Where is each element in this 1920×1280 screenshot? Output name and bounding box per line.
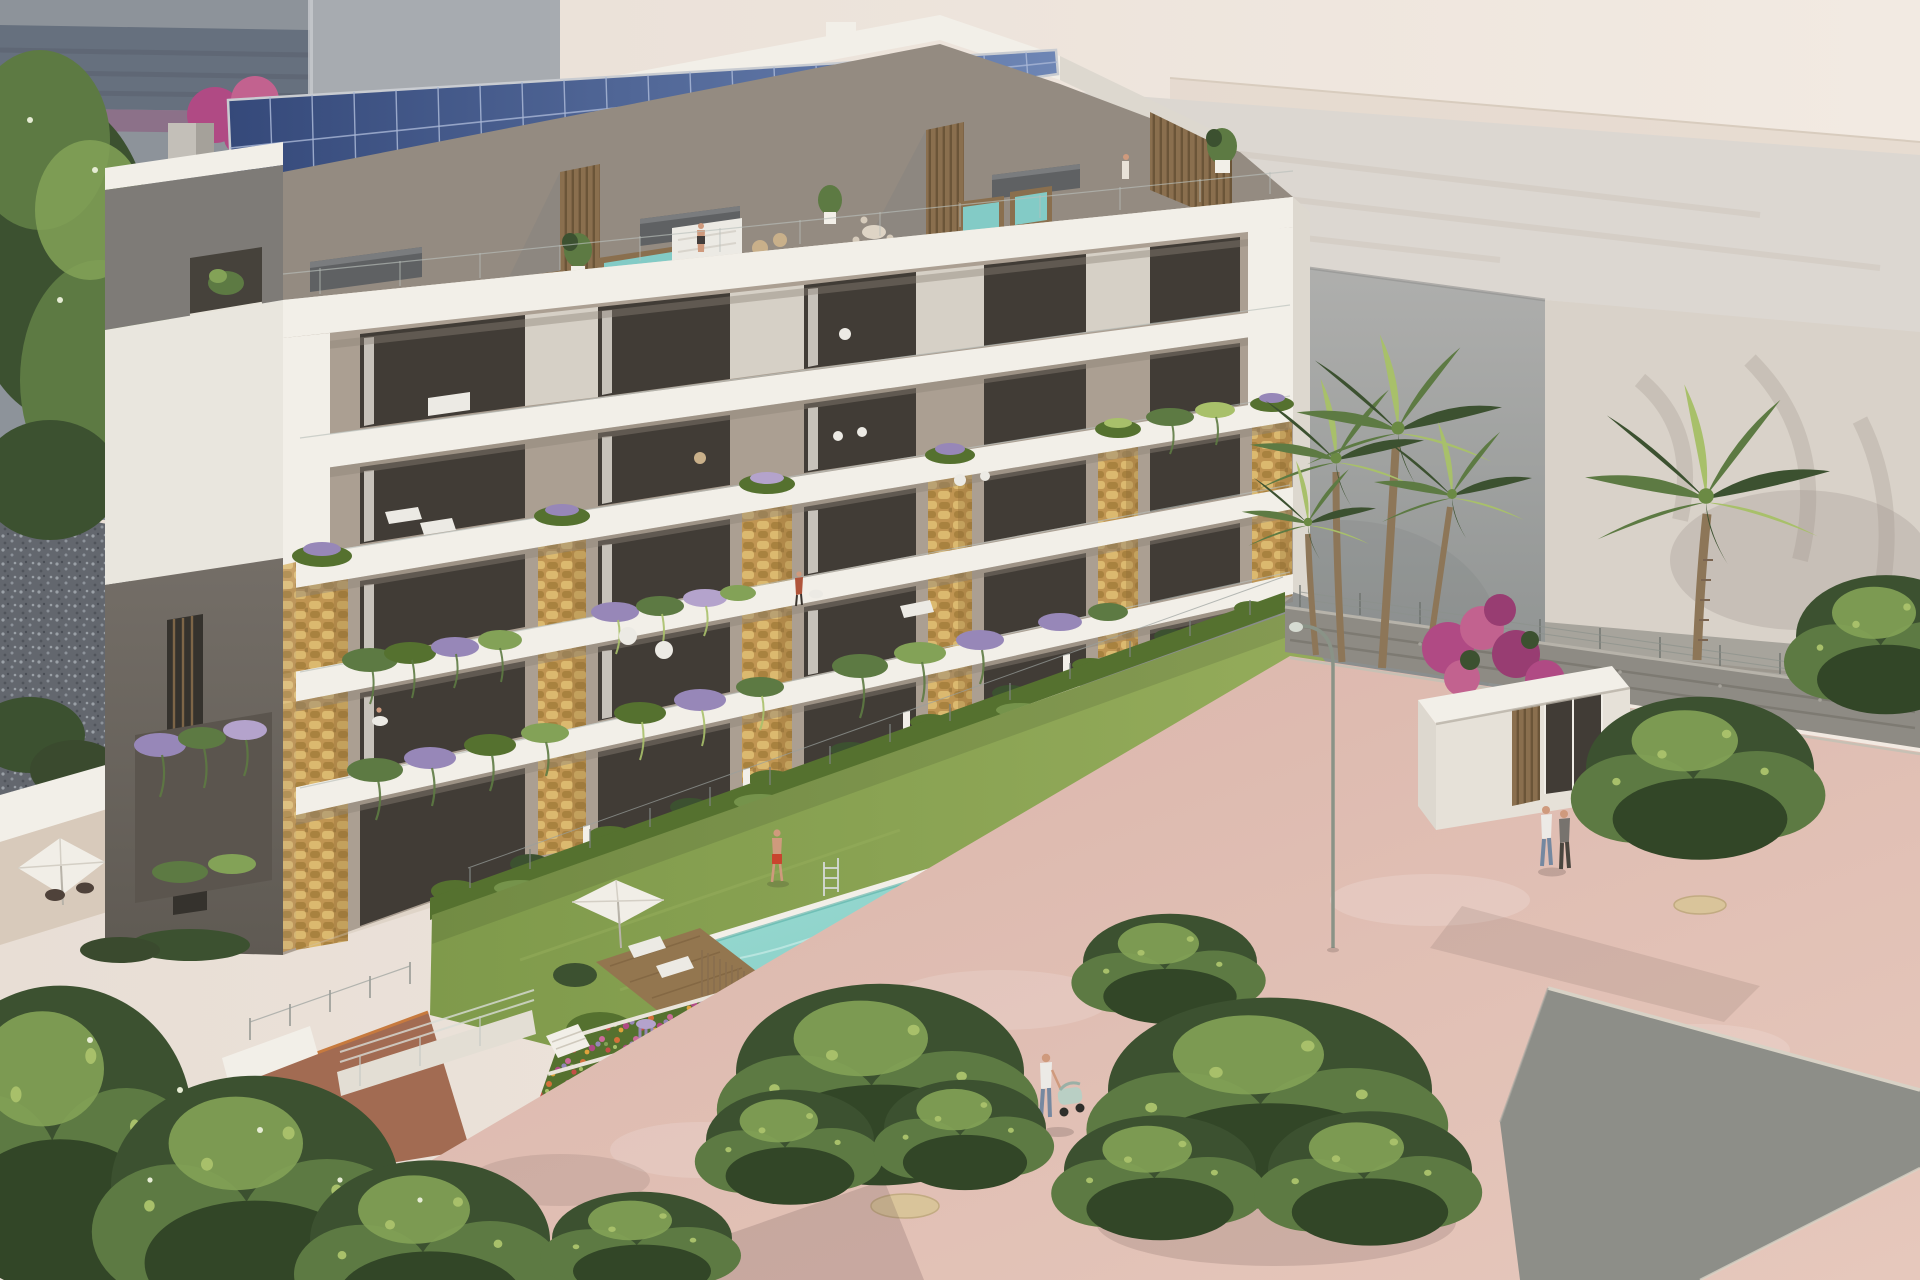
render-canvas — [0, 0, 1920, 1280]
tree-pit — [1674, 896, 1726, 914]
architectural-render-scene: Photorealistic render of a modern six-st… — [0, 0, 1920, 1280]
west-gable — [80, 142, 296, 963]
